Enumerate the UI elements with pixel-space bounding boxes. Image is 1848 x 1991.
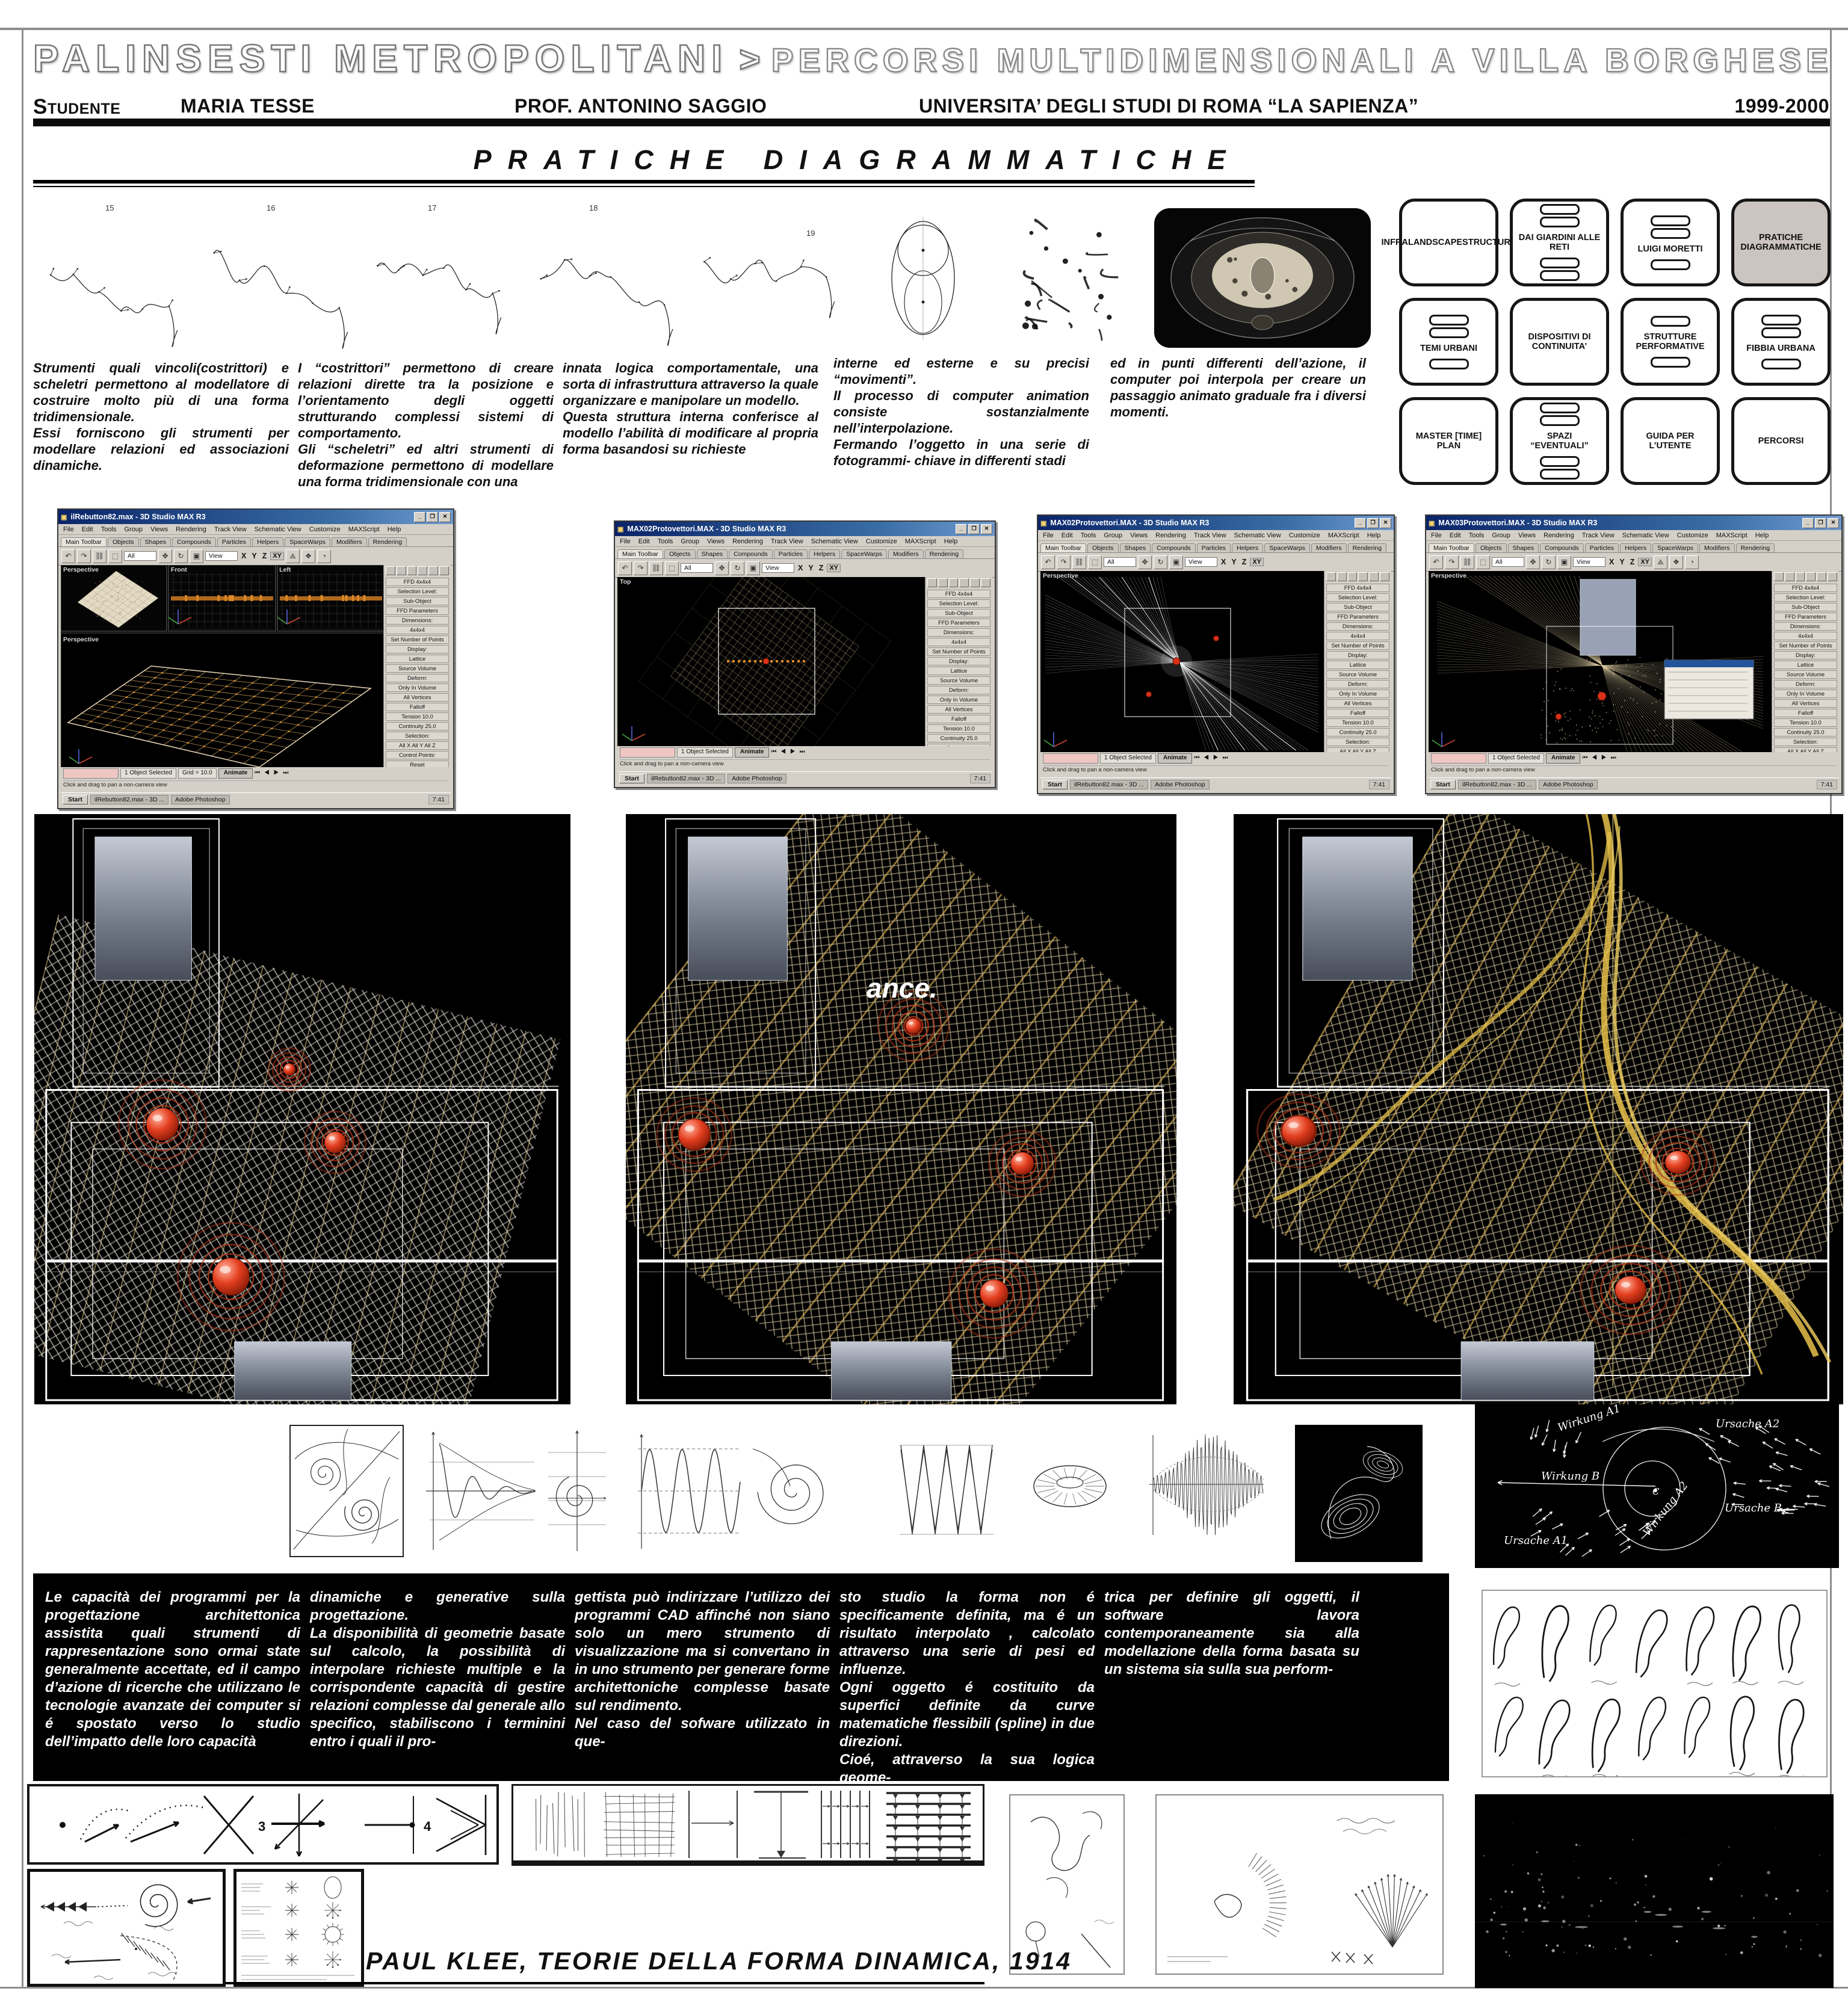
axis-x[interactable]: X	[239, 552, 248, 560]
panel-row[interactable]: Selection:	[1774, 738, 1837, 746]
tab[interactable]: Objects	[1476, 543, 1507, 552]
panel-row[interactable]: Source Volume	[927, 676, 990, 685]
panel-row[interactable]: Dimensions:	[1326, 622, 1389, 631]
tab[interactable]: Particles	[1585, 543, 1619, 552]
link-icon[interactable]: ⛓	[1072, 555, 1086, 569]
panel-row[interactable]: Sub-Object	[386, 597, 449, 605]
menu-item[interactable]: Rendering	[176, 526, 206, 533]
panel-row[interactable]: Only In Volume	[386, 684, 449, 692]
minimize-button[interactable]: _	[1802, 518, 1814, 528]
menu-item[interactable]: MAXScript	[905, 538, 936, 545]
axis-x[interactable]: X	[796, 564, 805, 572]
tab[interactable]: Objects	[664, 549, 696, 558]
menu-item[interactable]: Track View	[1194, 532, 1226, 539]
axis-z[interactable]: Z	[1628, 558, 1637, 566]
tab[interactable]: Main Toolbar	[61, 537, 107, 546]
tab[interactable]: Shapes	[140, 537, 172, 546]
svg-text:Ursache A1: Ursache A1	[1504, 1534, 1568, 1547]
render-icon[interactable]: ◔	[1685, 555, 1699, 569]
tab[interactable]: Helpers	[1620, 543, 1651, 552]
menu-item[interactable]: File	[1431, 532, 1442, 539]
panel-row[interactable]: Dimensions:	[386, 616, 449, 625]
axis-xy[interactable]: XY	[827, 564, 841, 572]
menu-item[interactable]: Rendering	[732, 538, 763, 545]
menu-item[interactable]: Help	[944, 538, 958, 545]
axis-x[interactable]: X	[1607, 558, 1616, 566]
panel-row[interactable]: Deform:	[927, 686, 990, 694]
app-icon: ▣	[617, 525, 623, 533]
playback-controls[interactable]: ⏮ ◀ ▶ ⏭	[255, 768, 289, 779]
close-button[interactable]: ✕	[981, 524, 992, 534]
select-icon[interactable]: ⬚	[665, 561, 679, 575]
selection-filter[interactable]: All	[1492, 557, 1524, 567]
axis-x[interactable]: X	[1219, 558, 1228, 566]
taskbar-task-1[interactable]: ilRebutton82.max - 3D ...	[1458, 780, 1536, 789]
menu-item[interactable]: Track View	[1582, 532, 1615, 539]
mirror-icon[interactable]: ⟁	[1654, 555, 1667, 569]
tab[interactable]: Rendering	[368, 537, 407, 546]
panel-row[interactable]: Tension 10.0	[927, 724, 990, 733]
night-photo	[1475, 1794, 1834, 1988]
tab[interactable]: Shapes	[1508, 543, 1539, 552]
viewport-area[interactable]: Top	[617, 577, 926, 750]
panel-row[interactable]: Selection:	[1326, 738, 1389, 746]
menu-item[interactable]: Customize	[866, 538, 897, 545]
maximize-button[interactable]: ❐	[427, 512, 438, 522]
tab[interactable]: SpaceWarps	[285, 537, 330, 546]
taskbar-task-2[interactable]: Adobe Photoshop	[1151, 780, 1210, 789]
panel-row[interactable]: Tension 10.0	[1774, 718, 1837, 727]
menu-item[interactable]: File	[1043, 532, 1054, 539]
panel-row[interactable]: 4x4x4	[927, 638, 990, 646]
close-button[interactable]: ✕	[1380, 518, 1391, 528]
minimize-button[interactable]: _	[1355, 518, 1366, 528]
panel-row[interactable]: Falloff	[386, 703, 449, 711]
axis-z[interactable]: Z	[261, 552, 269, 560]
menu-item[interactable]: Rendering	[1155, 532, 1186, 539]
animate-button[interactable]: Animate	[1546, 753, 1580, 764]
panel-row[interactable]: Only In Volume	[927, 696, 990, 704]
tab[interactable]: Compounds	[172, 537, 216, 546]
panel-row[interactable]: Set Number of Points	[927, 647, 990, 656]
tab[interactable]: SpaceWarps	[1652, 543, 1698, 552]
panel-row[interactable]: Source Volume	[1774, 670, 1837, 679]
panel-row[interactable]: Lattice	[1326, 661, 1389, 669]
menu-item[interactable]: Rendering	[1544, 532, 1574, 539]
redo-icon[interactable]: ↷	[77, 549, 91, 563]
panel-row[interactable]: Selection Level:	[1326, 593, 1389, 602]
undo-icon[interactable]: ↶	[1041, 555, 1055, 569]
menu-bar: FileEditToolsGroupViewsRenderingTrack Vi…	[615, 536, 995, 547]
sine-wave-diagram	[631, 1431, 743, 1551]
start-button[interactable]: Start	[1430, 780, 1456, 789]
undo-icon[interactable]: ↶	[618, 561, 632, 575]
rotate-icon[interactable]: ↻	[174, 549, 188, 563]
branch-sketch-2	[194, 208, 351, 355]
panel-row[interactable]: Set Number of Points	[386, 635, 449, 644]
panel-row[interactable]: Control Points:	[386, 751, 449, 759]
undo-icon[interactable]: ↶	[61, 549, 75, 563]
minimize-button[interactable]: _	[956, 524, 967, 534]
tab[interactable]: Modifiers	[1311, 543, 1347, 552]
move-icon[interactable]: ✥	[158, 549, 172, 563]
taskbar-task-2[interactable]: Adobe Photoshop	[171, 795, 230, 804]
undo-icon[interactable]: ↶	[1429, 555, 1443, 569]
panel-row[interactable]: FFD Parameters	[1774, 613, 1837, 621]
nav-button-master-time-plan[interactable]: MASTER [TIME] PLAN	[1399, 397, 1498, 485]
nav-button-temi-urbani[interactable]: TEMI URBANI	[1399, 298, 1498, 386]
torus-diagram	[1030, 1439, 1110, 1533]
mirror-icon[interactable]: ⟁	[286, 549, 300, 563]
nav-button-strutture-performative[interactable]: STRUTTURE PERFORMATIVE	[1621, 298, 1720, 386]
panel-row[interactable]: Falloff	[1774, 709, 1837, 717]
tab[interactable]: Modifiers	[1699, 543, 1735, 552]
taskbar-task-1[interactable]: ilRebutton82.max - 3D ...	[90, 795, 168, 804]
selection-filter[interactable]: All	[681, 563, 713, 573]
viewport-area[interactable]: Perspective	[1040, 571, 1325, 756]
select-icon[interactable]: ⬚	[1476, 555, 1490, 569]
panel-row[interactable]: Continuity 25.0	[1326, 728, 1389, 736]
menu-item[interactable]: Track View	[214, 526, 247, 533]
axis-y[interactable]: Y	[250, 552, 258, 560]
panel-row[interactable]: Source Volume	[386, 664, 449, 673]
menu-item[interactable]: Views	[150, 526, 168, 533]
left-frame-line	[22, 28, 23, 1987]
panel-row[interactable]: 4x4x4	[1774, 632, 1837, 640]
select-icon[interactable]: ⬚	[108, 549, 122, 563]
menu-item[interactable]: Tools	[658, 538, 673, 545]
toolbar-tabs: Main ToolbarObjectsShapesCompoundsPartic…	[58, 535, 453, 547]
panel-row[interactable]: Continuity 25.0	[1774, 728, 1837, 736]
menu-item[interactable]: Help	[1367, 532, 1381, 539]
render-icon[interactable]: ◔	[317, 549, 331, 563]
tab[interactable]: Compounds	[1152, 543, 1196, 552]
menu-item[interactable]: Schematic View	[811, 538, 858, 545]
axis-xy[interactable]: XY	[1638, 558, 1652, 566]
window-titlebar[interactable]: ▣ MAX03Protovettori.MAX - 3D Studio MAX …	[1426, 516, 1841, 530]
panel-row[interactable]: Falloff	[927, 715, 990, 723]
viewport-area[interactable]: Perspective Front Left Perspective	[61, 565, 385, 771]
reference-coordsys[interactable]: View	[762, 563, 794, 573]
status-bar: 1 Object Selected Grid = 10.0 Animate ⏮ …	[61, 767, 451, 791]
panel-row[interactable]: Only In Volume	[1774, 690, 1837, 698]
max-window-4: ▣ MAX03Protovettori.MAX - 3D Studio MAX …	[1425, 514, 1843, 794]
tab[interactable]: Objects	[1087, 543, 1119, 552]
playback-controls[interactable]: ⏮ ◀ ▶ ⏭	[1582, 753, 1617, 764]
tab[interactable]: Rendering	[1736, 543, 1775, 552]
tab[interactable]: Particles	[217, 537, 251, 546]
scale-icon[interactable]: ▣	[190, 549, 203, 563]
panel-row[interactable]: Display:	[1326, 651, 1389, 659]
panel-row[interactable]: Display:	[386, 645, 449, 653]
redo-icon[interactable]: ↷	[1057, 555, 1071, 569]
max-window-3: ▣ MAX02Protovettori.MAX - 3D Studio MAX …	[1037, 514, 1395, 794]
command-panel[interactable]: FFD 4x4x4Selection Level:Sub-ObjectFFD P…	[383, 565, 451, 771]
close-button[interactable]: ✕	[1828, 518, 1839, 528]
panel-row[interactable]: Deform:	[1326, 680, 1389, 688]
tab[interactable]: Compounds	[729, 549, 773, 558]
klee-arrow-studies: 3 4	[27, 1784, 499, 1865]
tab[interactable]: Main Toolbar	[1429, 543, 1474, 552]
maximize-button[interactable]: ❐	[1367, 518, 1379, 528]
rotate-icon[interactable]: ↻	[1542, 555, 1556, 569]
maximize-button[interactable]: ❐	[1815, 518, 1826, 528]
tab[interactable]: Helpers	[809, 549, 840, 558]
move-icon[interactable]: ✥	[1138, 555, 1152, 569]
menu-item[interactable]: Group	[681, 538, 699, 545]
tab[interactable]: Shapes	[697, 549, 728, 558]
menu-item[interactable]: Tools	[1469, 532, 1485, 539]
panel-row[interactable]: All X All Y All Z	[386, 741, 449, 750]
panel-row[interactable]: FFD 4x4x4	[1774, 584, 1837, 592]
redo-icon[interactable]: ↷	[1445, 555, 1459, 569]
menu-item[interactable]: Group	[124, 526, 143, 533]
panel-row[interactable]: Dimensions:	[1774, 622, 1837, 631]
axis-y[interactable]: Y	[1618, 558, 1626, 566]
tab[interactable]: Main Toolbar	[617, 549, 663, 558]
panel-row[interactable]: Tension 10.0	[1326, 718, 1389, 727]
taskbar-task-2[interactable]: Adobe Photoshop	[1539, 780, 1598, 789]
title-main: PALINSESTI METROPOLITANI	[33, 37, 728, 80]
toolbar-tabs: Main ToolbarObjectsShapesCompoundsPartic…	[1426, 541, 1841, 553]
zigzag-wave-diagram	[895, 1431, 998, 1551]
command-panel[interactable]: FFD 4x4x4Selection Level:Sub-ObjectFFD P…	[925, 577, 992, 750]
menu-item[interactable]: Help	[1755, 532, 1769, 539]
tab[interactable]: Helpers	[252, 537, 283, 546]
panel-row[interactable]: Selection Level:	[386, 587, 449, 596]
menu-item[interactable]: Group	[1104, 532, 1122, 539]
menu-item[interactable]: Tools	[101, 526, 117, 533]
array-icon[interactable]: ❖	[1669, 555, 1683, 569]
panel-row[interactable]: 4x4x4	[386, 626, 449, 634]
close-button[interactable]: ✕	[439, 512, 451, 522]
sketch-number: 19	[806, 229, 815, 238]
menu-item[interactable]: Tools	[1081, 532, 1096, 539]
nav-button-luigi-moretti[interactable]: LUIGI MORETTI	[1621, 199, 1720, 286]
menu-bar: FileEditToolsGroupViewsRenderingTrack Vi…	[1426, 530, 1841, 541]
intro-column-4: interne ed esterne e su precisi “movimen…	[833, 355, 1089, 469]
menu-item[interactable]: Views	[1130, 532, 1148, 539]
panel-row[interactable]: Set Number of Points	[1774, 641, 1837, 650]
tab[interactable]: Modifiers	[888, 549, 924, 558]
menu-item[interactable]: Edit	[1450, 532, 1461, 539]
panel-row[interactable]: Deform:	[1774, 680, 1837, 688]
start-button[interactable]: Start	[619, 774, 644, 783]
panel-row[interactable]: All Vertices	[1774, 699, 1837, 708]
app-icon: ▣	[61, 513, 67, 521]
nav-button-spazi-eventuali[interactable]: SPAZI “EVENTUALI”	[1510, 397, 1609, 485]
panel-row[interactable]: FFD Parameters	[1326, 613, 1389, 621]
tab[interactable]: Rendering	[1348, 543, 1386, 552]
nav-button-fibbia-urbana[interactable]: FIBBIA URBANA	[1731, 298, 1831, 386]
axis-y[interactable]: Y	[806, 564, 815, 572]
hand-sketch-2	[1155, 1794, 1444, 1975]
start-button[interactable]: Start	[1042, 780, 1068, 789]
nav-button-dai-giardini[interactable]: DAI GIARDINI ALLE RETI	[1510, 199, 1609, 286]
tab[interactable]: SpaceWarps	[841, 549, 887, 558]
animate-button[interactable]: Animate	[218, 768, 253, 779]
poster-page: PALINSESTI METROPOLITANI > PERCORSI MULT…	[0, 0, 1848, 1991]
axis-xy[interactable]: XY	[1250, 558, 1264, 566]
panel-row[interactable]: Source Volume	[1326, 670, 1389, 679]
tab[interactable]: SpaceWarps	[1264, 543, 1310, 552]
section-title: PRATICHE DIAGRAMMATICHE	[361, 144, 1354, 176]
panel-row[interactable]: Lattice	[386, 655, 449, 663]
reference-coordsys[interactable]: View	[1185, 557, 1217, 567]
vortex-flow-diagram	[288, 1423, 406, 1559]
reference-coordsys[interactable]: View	[1573, 557, 1605, 567]
panel-row[interactable]: Selection Level:	[927, 599, 990, 608]
panel-row[interactable]: Lattice	[927, 667, 990, 675]
tab[interactable]: Particles	[774, 549, 808, 558]
nav-button-guida-utente[interactable]: GUIDA PER L’UTENTE	[1621, 397, 1720, 485]
line-pattern-studies	[511, 1784, 984, 1866]
select-icon[interactable]: ⬚	[1088, 555, 1102, 569]
menu-item[interactable]: File	[63, 526, 74, 533]
menu-item[interactable]: Schematic View	[1234, 532, 1281, 539]
panel-row[interactable]: Sub-Object	[927, 609, 990, 617]
panel-row[interactable]: Sub-Object	[1326, 603, 1389, 611]
tab[interactable]: Helpers	[1232, 543, 1263, 552]
playback-controls[interactable]: ⏮ ◀ ▶ ⏭	[1194, 753, 1229, 764]
professor-name: PROF. ANTONINO SAGGIO	[515, 95, 767, 117]
tab[interactable]: Modifiers	[332, 537, 367, 546]
panel-row[interactable]: Continuity 25.0	[927, 734, 990, 742]
panel-row[interactable]: Display:	[927, 657, 990, 665]
student-name: MARIA TESSE	[181, 95, 315, 117]
panel-row[interactable]: All Vertices	[1326, 699, 1389, 708]
nav-button-percorsi[interactable]: PERCORSI	[1731, 397, 1831, 485]
command-panel[interactable]: FFD 4x4x4Selection Level:Sub-ObjectFFD P…	[1324, 571, 1391, 756]
taskbar-clock: 7:41	[970, 774, 990, 783]
maximize-button[interactable]: ❐	[968, 524, 980, 534]
tab[interactable]: Main Toolbar	[1040, 543, 1086, 552]
redo-icon[interactable]: ↷	[634, 561, 647, 575]
panel-row[interactable]: Selection:	[386, 732, 449, 740]
panel-row[interactable]: Sub-Object	[1774, 603, 1837, 611]
array-icon[interactable]: ❖	[301, 549, 315, 563]
menu-item[interactable]: MAXScript	[1716, 532, 1748, 539]
panel-row[interactable]: Dimensions:	[927, 628, 990, 637]
panel-row[interactable]: FFD Parameters	[386, 607, 449, 615]
tab[interactable]: Rendering	[925, 549, 963, 558]
link-icon[interactable]: ⛓	[1460, 555, 1474, 569]
window-titlebar[interactable]: ▣ MAX02Protovettori.MAX - 3D Studio MAX …	[615, 522, 995, 536]
maxscript-listener[interactable]	[1431, 753, 1486, 764]
scale-icon[interactable]: ▣	[1557, 555, 1571, 569]
tab[interactable]: Compounds	[1540, 543, 1584, 552]
menu-item[interactable]: Schematic View	[255, 526, 301, 533]
menu-item[interactable]: Customize	[1289, 532, 1320, 539]
move-icon[interactable]: ✥	[715, 561, 729, 575]
panel-row[interactable]: Only In Volume	[1326, 690, 1389, 698]
panel-row[interactable]: FFD Parameters	[927, 619, 990, 627]
tab[interactable]: Objects	[108, 537, 139, 546]
panel-row[interactable]: All Vertices	[927, 705, 990, 714]
max-window-2: ▣ MAX02Protovettori.MAX - 3D Studio MAX …	[614, 520, 996, 788]
panel-row[interactable]: Deform:	[386, 674, 449, 682]
menu-item[interactable]: Help	[388, 526, 401, 533]
command-panel[interactable]: FFD 4x4x4Selection Level:Sub-ObjectFFD P…	[1772, 571, 1839, 756]
axis-z[interactable]: Z	[1240, 558, 1249, 566]
panel-row[interactable]: FFD 4x4x4	[927, 590, 990, 598]
panel-row[interactable]: Lattice	[1774, 661, 1837, 669]
axis-y[interactable]: Y	[1229, 558, 1238, 566]
minimize-button[interactable]: _	[414, 512, 425, 522]
reference-coordsys[interactable]: View	[205, 551, 238, 561]
playback-controls[interactable]: ⏮ ◀ ▶ ⏭	[771, 747, 806, 758]
panel-row[interactable]: All Vertices	[386, 693, 449, 702]
move-icon[interactable]: ✥	[1526, 555, 1540, 569]
tab[interactable]: Shapes	[1120, 543, 1151, 552]
tab[interactable]: Particles	[1197, 543, 1231, 552]
rotate-icon[interactable]: ↻	[1154, 555, 1167, 569]
selection-filter[interactable]: All	[1104, 557, 1136, 567]
animate-button[interactable]: Animate	[1158, 753, 1192, 764]
nav-button-pratiche-diagrammatiche[interactable]: PRATICHE DIAGRAMMATICHE	[1731, 199, 1831, 286]
menu-item[interactable]: Schematic View	[1622, 532, 1669, 539]
selection-filter[interactable]: All	[124, 551, 156, 561]
menu-item[interactable]: Track View	[771, 538, 803, 545]
menu-item[interactable]: MAXScript	[348, 526, 380, 533]
menu-item[interactable]: Views	[707, 538, 725, 545]
scale-icon[interactable]: ▣	[1169, 555, 1183, 569]
title-separator: >	[739, 39, 760, 79]
menu-item[interactable]: Group	[1492, 532, 1510, 539]
animate-button[interactable]: Animate	[735, 747, 769, 758]
maxscript-listener[interactable]	[620, 747, 675, 758]
panel-row[interactable]: Selection Level:	[1774, 593, 1837, 602]
taskbar-task-2[interactable]: Adobe Photoshop	[728, 774, 786, 783]
venn-ellipse-diagram	[848, 211, 998, 349]
axis-z[interactable]: Z	[817, 564, 826, 572]
axis-xy[interactable]: XY	[270, 552, 284, 560]
panel-row[interactable]: FFD 4x4x4	[386, 578, 449, 586]
nav-button-dispositivi[interactable]: DISPOSITIVI DI CONTINUITA’	[1510, 298, 1609, 386]
menu-item[interactable]: MAXScript	[1328, 532, 1359, 539]
panel-row[interactable]: Set Number of Points	[1326, 641, 1389, 650]
menu-item[interactable]: Edit	[1062, 532, 1073, 539]
link-icon[interactable]: ⛓	[93, 549, 107, 563]
nav-button-infralandscapestructure[interactable]: INFRALANDSCAPESTRUCTURE	[1399, 199, 1498, 286]
start-button[interactable]: Start	[63, 795, 88, 804]
taskbar-task-1[interactable]: ilRebutton82.max - 3D ...	[647, 774, 725, 783]
menu-item[interactable]: File	[620, 538, 631, 545]
viewport-area[interactable]: Perspective	[1429, 571, 1773, 756]
menu-item[interactable]: Edit	[638, 538, 650, 545]
panel-row[interactable]: FFD 4x4x4	[1326, 584, 1389, 592]
taskbar-task-1[interactable]: ilRebutton82.max - 3D ...	[1070, 780, 1148, 789]
link-icon[interactable]: ⛓	[649, 561, 663, 575]
maxscript-listener[interactable]	[63, 768, 119, 779]
window-titlebar[interactable]: ▣ MAX02Protovettori.MAX - 3D Studio MAX …	[1038, 516, 1394, 530]
panel-row[interactable]: Display:	[1774, 651, 1837, 659]
taskbar: Start ilRebutton82.max - 3D ... Adobe Ph…	[1429, 777, 1839, 791]
bottom-text-band: Le capacità dei programmi per la progett…	[33, 1573, 1449, 1781]
menu-item[interactable]: Views	[1518, 532, 1536, 539]
panel-row[interactable]: Falloff	[1326, 709, 1389, 717]
menu-item[interactable]: Edit	[82, 526, 93, 533]
panel-row[interactable]: Continuity 25.0	[386, 722, 449, 730]
menu-item[interactable]: Customize	[309, 526, 341, 533]
window-titlebar[interactable]: ▣ ilRebutton82.max - 3D Studio MAX R3 _❐…	[58, 510, 453, 524]
scale-icon[interactable]: ▣	[746, 561, 760, 575]
maxscript-listener[interactable]	[1043, 753, 1098, 764]
menu-item[interactable]: Customize	[1677, 532, 1708, 539]
panel-row[interactable]: Tension 10.0	[386, 712, 449, 721]
rotate-icon[interactable]: ↻	[731, 561, 744, 575]
panel-row[interactable]: 4x4x4	[1326, 632, 1389, 640]
